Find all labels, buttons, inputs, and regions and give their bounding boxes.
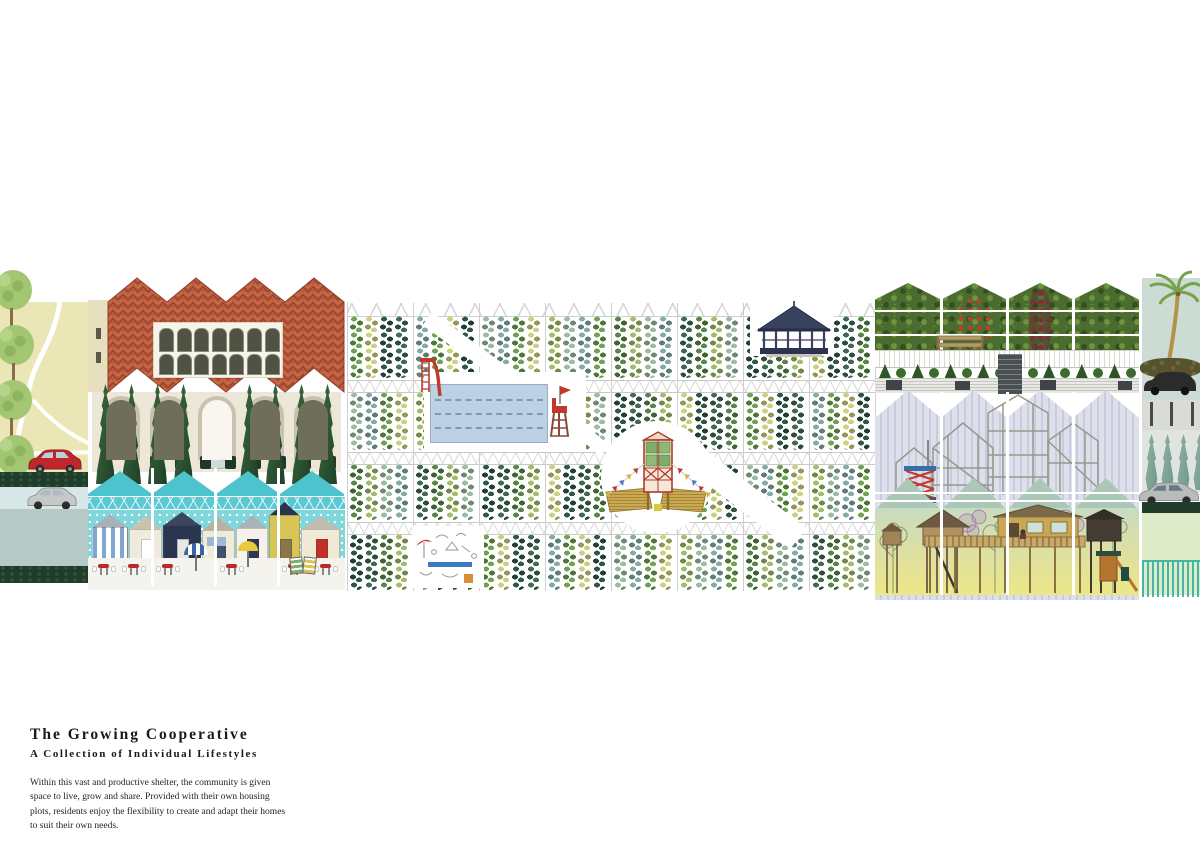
crop-column xyxy=(593,534,606,590)
table-leg xyxy=(130,568,132,575)
crop-column xyxy=(512,534,525,590)
crop-column xyxy=(857,316,870,378)
crop-column xyxy=(710,534,723,590)
beach-hut-body xyxy=(202,530,235,560)
beach-hut-roof xyxy=(129,516,162,530)
terrace-stairs xyxy=(998,354,1022,394)
crop-column xyxy=(512,464,525,520)
arcade-arch-opening xyxy=(154,400,184,460)
crop-column xyxy=(725,392,738,450)
crop-column xyxy=(812,464,825,520)
workshop-post xyxy=(1006,392,1009,595)
crop-column xyxy=(842,392,855,450)
hedge-vine xyxy=(1029,289,1051,355)
crop-column xyxy=(395,392,408,450)
gallery-arch xyxy=(159,354,174,375)
crop-column xyxy=(497,464,510,520)
crop-column xyxy=(350,534,363,590)
crop-column xyxy=(548,316,561,378)
pavilion-window xyxy=(96,328,101,339)
crop-column xyxy=(812,534,825,590)
beach-hut-body xyxy=(269,515,300,560)
topiary-ball xyxy=(896,368,906,378)
crop-column xyxy=(563,316,576,378)
crop-column xyxy=(395,464,408,520)
water-slide xyxy=(418,352,442,400)
crop-column xyxy=(776,392,789,450)
palm-tree xyxy=(1148,270,1200,370)
gallery-arch xyxy=(177,354,192,375)
crop-column xyxy=(746,392,759,450)
umbrella-pole xyxy=(247,551,249,567)
beach-hut-body xyxy=(129,529,162,560)
crop-column xyxy=(527,464,540,520)
gallery-arch xyxy=(194,328,209,352)
crop-column xyxy=(761,392,774,450)
topiary-ball xyxy=(1126,368,1136,378)
crop-column xyxy=(695,534,708,590)
canopy-post xyxy=(214,468,217,586)
planter-box xyxy=(955,381,970,390)
crop-column xyxy=(593,316,606,378)
arcade-arch-opening xyxy=(106,400,136,460)
pool-lane-line xyxy=(435,413,543,415)
cafe-chair xyxy=(333,566,338,572)
crop-column xyxy=(614,316,627,378)
crop-column xyxy=(710,316,723,378)
canopy-post xyxy=(277,468,280,586)
gallery-arch xyxy=(247,354,262,375)
topiary-ball xyxy=(1060,368,1070,378)
arcade-arch-opening xyxy=(250,400,280,460)
gallery-arch xyxy=(177,328,192,352)
beach-hut xyxy=(92,514,128,560)
topiary-ball xyxy=(929,368,939,378)
cafe-chair xyxy=(220,566,225,572)
beach-hut-roof xyxy=(92,514,128,528)
picnic-sketch xyxy=(412,528,484,588)
beach-hut-body xyxy=(301,529,340,560)
sage-terrace xyxy=(0,509,88,567)
bunting-flag xyxy=(706,492,711,498)
crop-column xyxy=(548,534,561,590)
crop-column xyxy=(644,534,657,590)
crop-column xyxy=(380,464,393,520)
arcade-arch-opening xyxy=(202,400,232,460)
hedge-strip-lower xyxy=(0,566,88,583)
table-leg xyxy=(228,568,230,575)
cafe-chair xyxy=(141,566,146,572)
crop-column xyxy=(857,392,870,450)
beach-hut-roof xyxy=(269,502,300,516)
crop-column xyxy=(446,464,459,520)
canopy-post xyxy=(151,468,154,586)
poster-description: Within this vast and productive shelter,… xyxy=(30,776,288,833)
crop-column xyxy=(350,464,363,520)
crop-column xyxy=(512,316,525,378)
crop-column xyxy=(497,534,510,590)
planter-box xyxy=(886,380,902,390)
crop-column xyxy=(380,316,393,378)
crop-column xyxy=(629,534,642,590)
crop-column xyxy=(644,316,657,378)
crop-column xyxy=(416,464,429,520)
beach-hut-body xyxy=(92,527,128,560)
crop-column xyxy=(350,392,363,450)
planter-box xyxy=(1040,380,1056,390)
teal-fence xyxy=(1142,560,1200,597)
workshop-post xyxy=(940,392,943,595)
crop-column xyxy=(746,534,759,590)
beach-hut xyxy=(236,515,268,560)
pollard-trunk xyxy=(1150,402,1153,426)
crop-column xyxy=(827,392,840,450)
crop-column xyxy=(812,392,825,450)
poster-title: The Growing Cooperative xyxy=(30,726,249,744)
topiary-ball xyxy=(1028,368,1038,378)
crop-column xyxy=(614,534,627,590)
crop-column xyxy=(431,464,444,520)
bunting-flag xyxy=(692,480,697,486)
beach-hut-roof xyxy=(163,512,201,526)
crop-column xyxy=(350,316,363,378)
crop-column xyxy=(842,464,855,520)
crop-column xyxy=(527,534,540,590)
gallery-arch xyxy=(229,328,244,352)
crop-column xyxy=(563,534,576,590)
overgrown-car xyxy=(1138,370,1200,398)
crop-column xyxy=(482,464,495,520)
cafe-chair xyxy=(92,566,97,572)
table-leg xyxy=(136,568,138,575)
beach-hut-roof xyxy=(301,516,340,530)
table-leg xyxy=(100,568,102,575)
crop-column xyxy=(725,534,738,590)
bunting-flag xyxy=(619,480,624,486)
table-leg xyxy=(164,568,166,575)
crop-column xyxy=(365,464,378,520)
table-leg xyxy=(170,568,172,575)
gallery-arch xyxy=(247,328,262,352)
table-leg xyxy=(322,568,324,575)
pollard-trunk xyxy=(1170,402,1173,426)
gallery-arch xyxy=(212,328,227,352)
crop-column xyxy=(380,392,393,450)
pool-lane-line xyxy=(435,399,543,401)
crop-column xyxy=(725,316,738,378)
crop-column xyxy=(857,534,870,590)
field-post xyxy=(743,303,744,591)
topiary-ball xyxy=(1093,368,1103,378)
crop-column xyxy=(659,316,672,378)
cafe-chair xyxy=(122,566,127,572)
pavilion-gallery xyxy=(153,322,283,378)
cafe-chair xyxy=(175,566,180,572)
beach-hut-roof xyxy=(236,515,268,529)
field-post xyxy=(347,303,348,591)
crop-column xyxy=(365,392,378,450)
swimming-pool xyxy=(430,384,548,443)
crop-column xyxy=(365,316,378,378)
gallery-arch xyxy=(265,328,280,352)
cafe-chair xyxy=(282,566,287,572)
gallery-arch xyxy=(265,354,280,375)
gallery-arch xyxy=(212,354,227,375)
cafe-chair xyxy=(239,566,244,572)
bandstand-gazebo xyxy=(752,300,836,358)
deck-chair-yellow xyxy=(302,556,317,574)
lifeguard-chair xyxy=(546,384,572,444)
crop-column xyxy=(827,464,840,520)
crop-column xyxy=(578,316,591,378)
crop-column xyxy=(680,316,693,378)
crop-column xyxy=(842,316,855,378)
gallery-arch xyxy=(229,354,244,375)
pavilion-window xyxy=(96,352,101,363)
table-leg xyxy=(106,568,108,575)
table-leg xyxy=(328,568,330,575)
crop-column xyxy=(380,534,393,590)
crop-column xyxy=(842,534,855,590)
crop-column xyxy=(395,316,408,378)
crop-column xyxy=(629,316,642,378)
beach-hut-roof xyxy=(202,517,235,531)
crop-column xyxy=(365,534,378,590)
crop-column xyxy=(578,464,591,520)
pollard-trunk xyxy=(1191,402,1194,426)
beach-hut xyxy=(301,516,340,560)
harvest-tower xyxy=(598,430,718,522)
crop-column xyxy=(395,534,408,590)
cafe-chair xyxy=(156,566,161,572)
workshop-post xyxy=(1072,392,1075,595)
sedan-hedge-strip xyxy=(1142,502,1200,513)
presentation-board: The Growing Cooperative A Collection of … xyxy=(0,0,1200,848)
cafe-chair xyxy=(111,566,116,572)
poster-subtitle: A Collection of Individual Lifestyles xyxy=(30,748,258,760)
crop-column xyxy=(680,534,693,590)
crop-column xyxy=(527,316,540,378)
topiary-ball xyxy=(962,368,972,378)
hedge-strip-upper xyxy=(0,472,88,487)
crop-column xyxy=(857,464,870,520)
crop-column xyxy=(791,392,804,450)
crop-column xyxy=(461,464,474,520)
crop-column xyxy=(659,534,672,590)
gallery-arch xyxy=(159,328,174,352)
beach-hut xyxy=(269,502,300,560)
crop-column xyxy=(827,534,840,590)
crop-column xyxy=(761,534,774,590)
beach-hut xyxy=(129,516,162,560)
crop-column xyxy=(563,464,576,520)
crop-column xyxy=(791,464,804,520)
table-leg xyxy=(234,568,236,575)
arcade-arch-opening xyxy=(298,400,328,460)
planter-box xyxy=(1118,381,1132,390)
beach-hut-door xyxy=(316,539,328,560)
crop-column xyxy=(578,534,591,590)
crop-column xyxy=(695,316,708,378)
gallery-arch xyxy=(194,354,209,375)
crop-column xyxy=(548,464,561,520)
umbrella-pole xyxy=(195,555,197,571)
pool-lane-line xyxy=(435,427,543,429)
